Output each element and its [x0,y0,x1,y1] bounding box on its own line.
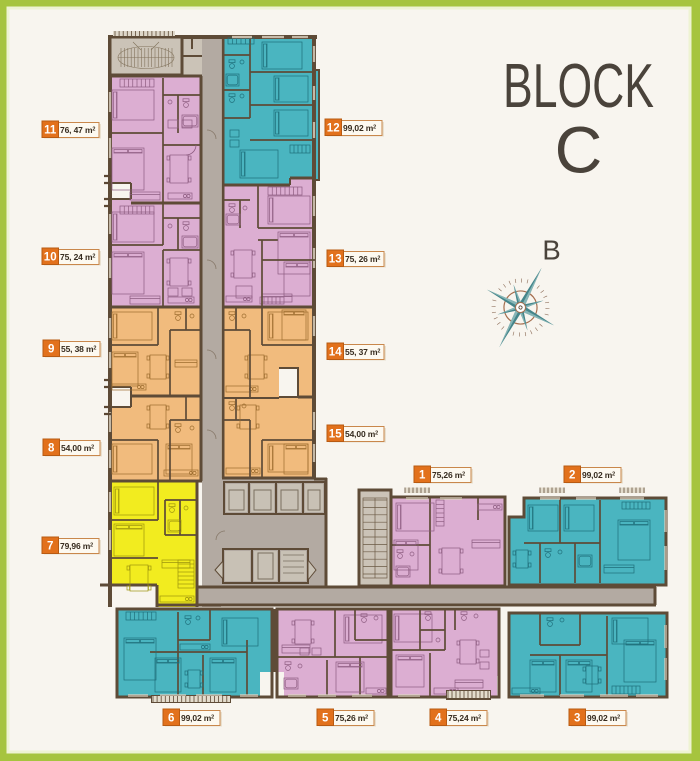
svg-text:4: 4 [435,713,442,725]
svg-text:79,96 m2: 79,96 m2 [60,541,93,551]
svg-text:75, 24 m2: 75, 24 m2 [60,252,95,262]
svg-text:75,26 m2: 75,26 m2 [432,470,465,480]
svg-text:5: 5 [322,713,329,725]
svg-text:3: 3 [574,713,580,725]
svg-text:14: 14 [329,347,342,359]
svg-text:54,00 m2: 54,00 m2 [345,429,378,439]
svg-text:11: 11 [44,125,57,137]
svg-text:8: 8 [48,443,55,455]
svg-text:9: 9 [48,344,54,356]
svg-text:75, 26 m2: 75, 26 m2 [345,254,380,264]
svg-text:55, 37 m2: 55, 37 m2 [345,347,380,357]
svg-text:7: 7 [47,541,53,553]
svg-text:15: 15 [329,429,342,441]
svg-text:6: 6 [168,713,174,725]
svg-text:10: 10 [44,252,57,264]
svg-text:99,02 m2: 99,02 m2 [582,470,615,480]
svg-text:C: C [555,113,603,187]
svg-text:1: 1 [419,470,426,482]
svg-text:BLOCK: BLOCK [503,52,654,121]
svg-text:55, 38 m2: 55, 38 m2 [61,344,96,354]
svg-text:2: 2 [569,470,575,482]
svg-text:B: B [542,235,560,266]
svg-text:54,00 m2: 54,00 m2 [61,443,94,453]
svg-text:99,02 m2: 99,02 m2 [181,713,214,723]
svg-text:99,02 m2: 99,02 m2 [587,713,620,723]
svg-text:13: 13 [329,254,342,266]
svg-text:75,26 m2: 75,26 m2 [335,713,368,723]
svg-text:12: 12 [327,123,340,135]
svg-text:99,02 m2: 99,02 m2 [343,123,376,133]
svg-text:75,24 m2: 75,24 m2 [448,713,481,723]
svg-text:76, 47 m2: 76, 47 m2 [60,125,95,135]
